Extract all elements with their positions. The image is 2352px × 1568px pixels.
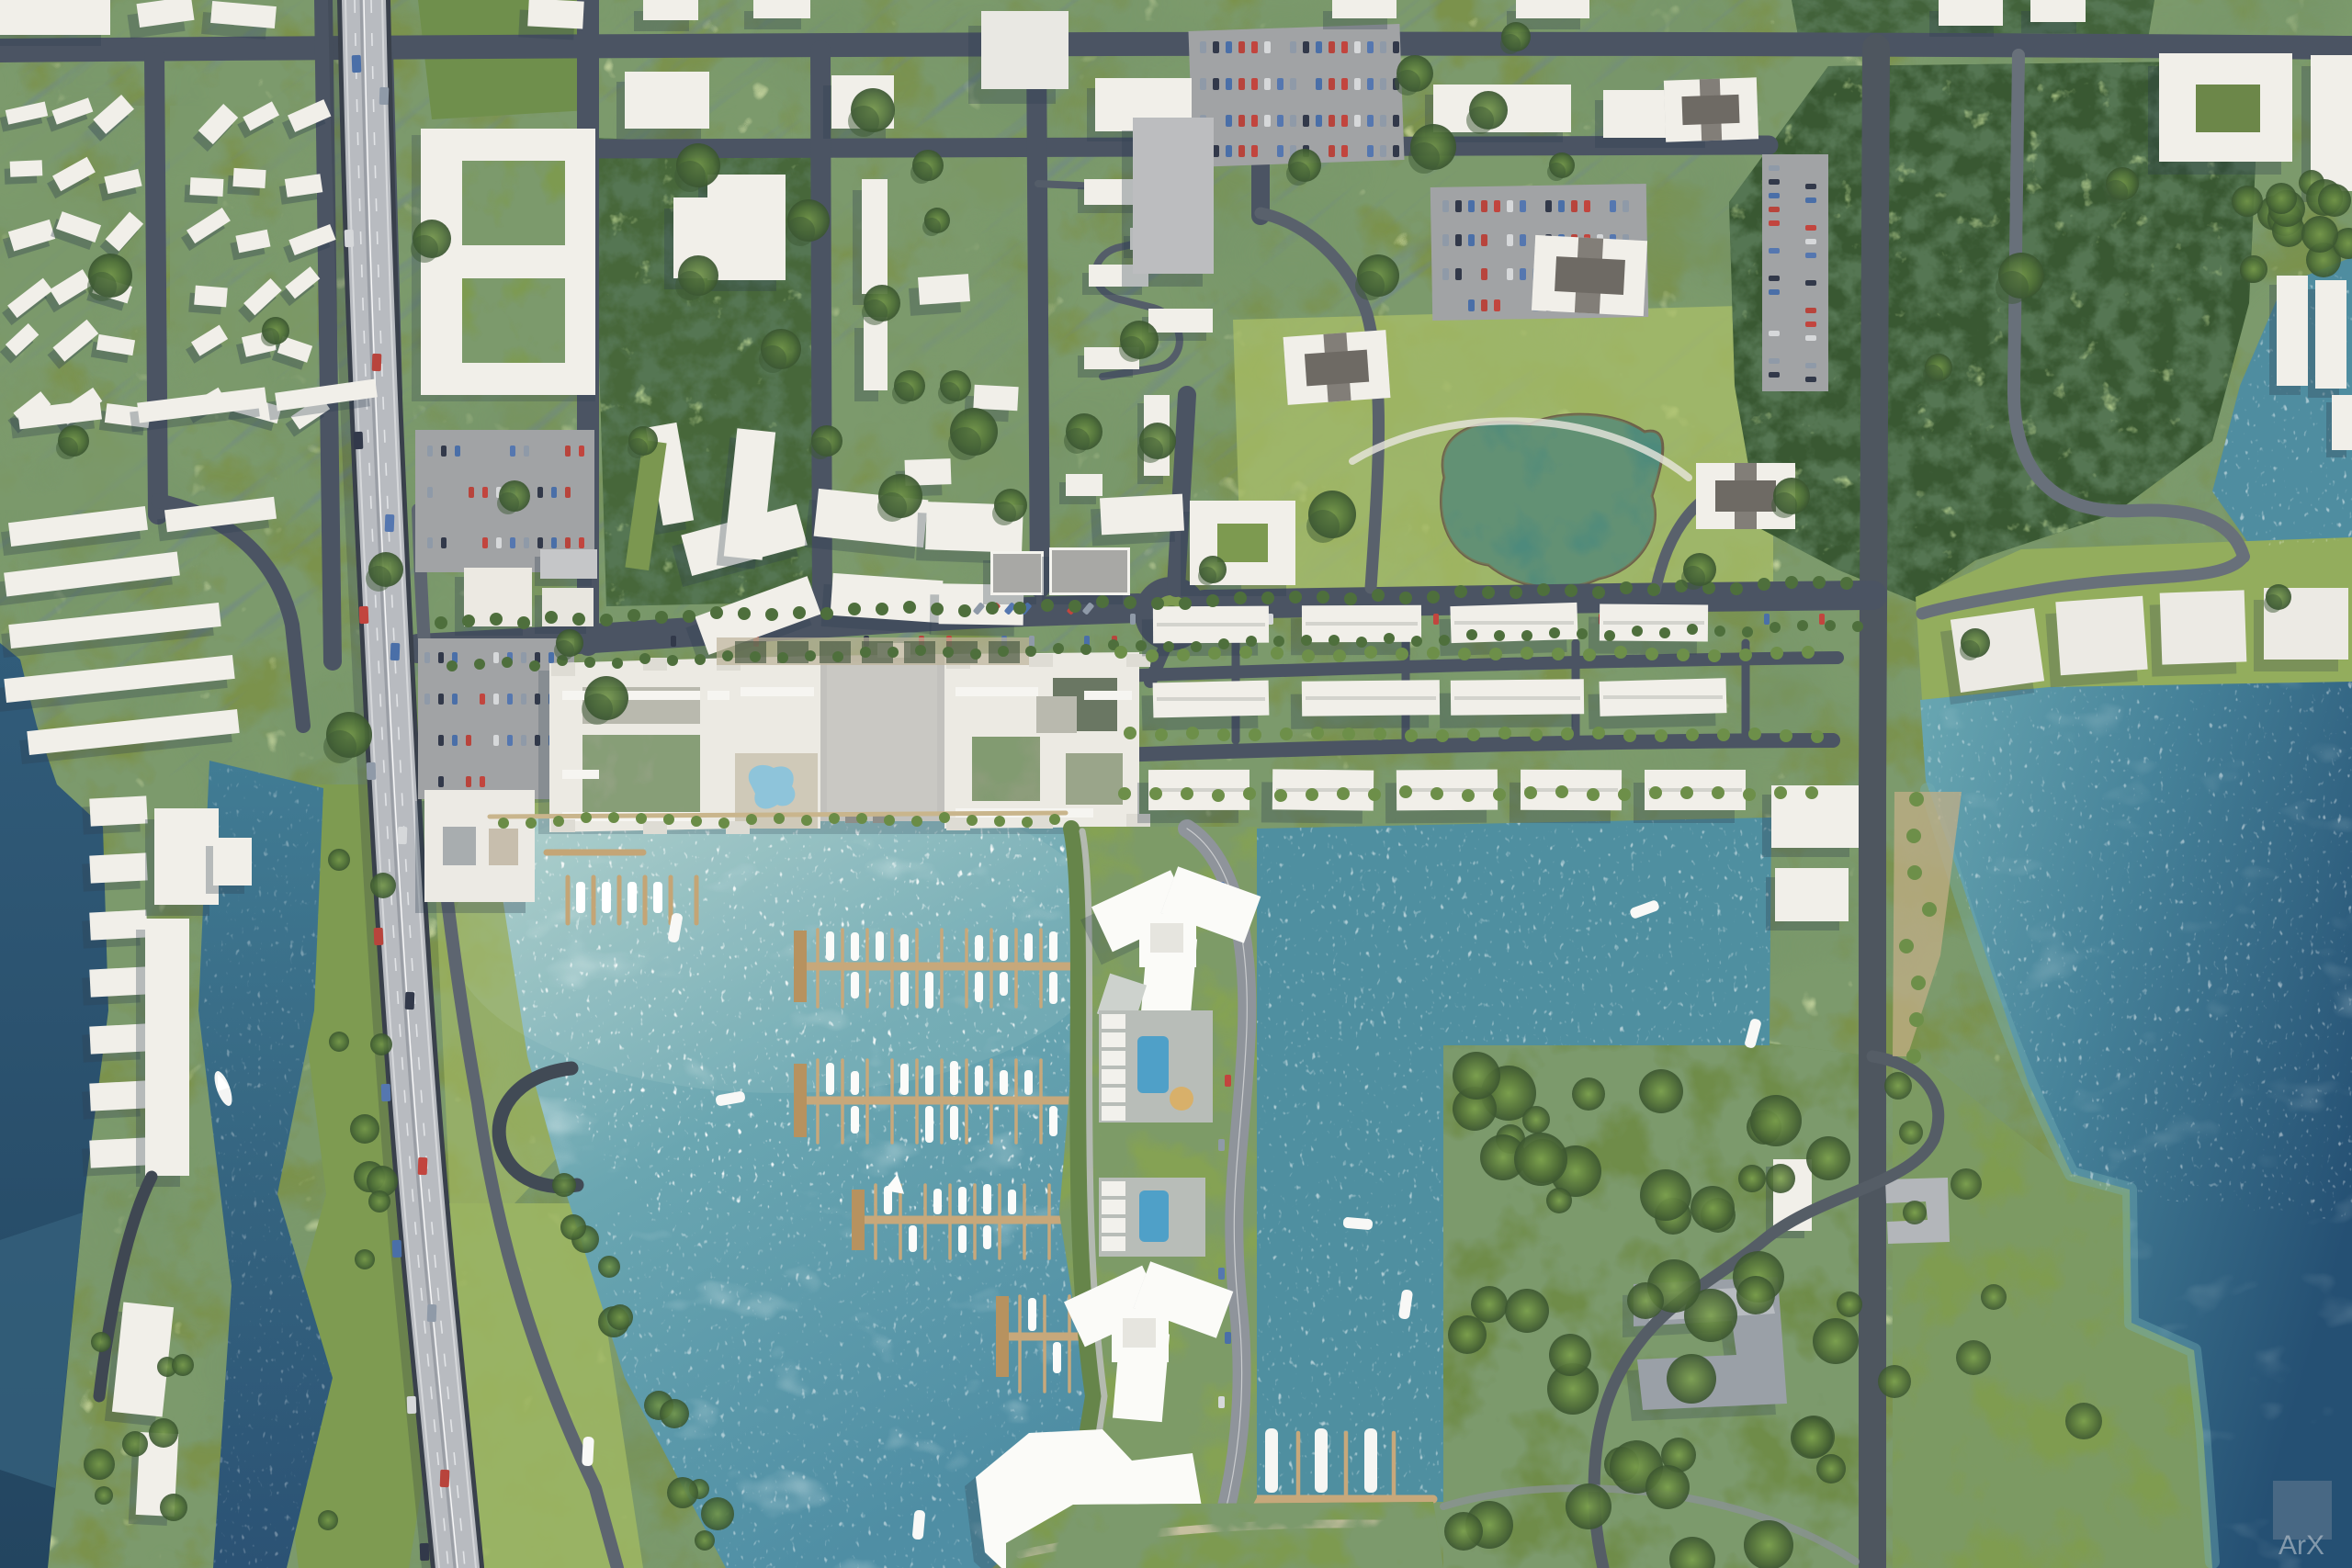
svg-text:ArX: ArX: [2278, 1530, 2324, 1561]
